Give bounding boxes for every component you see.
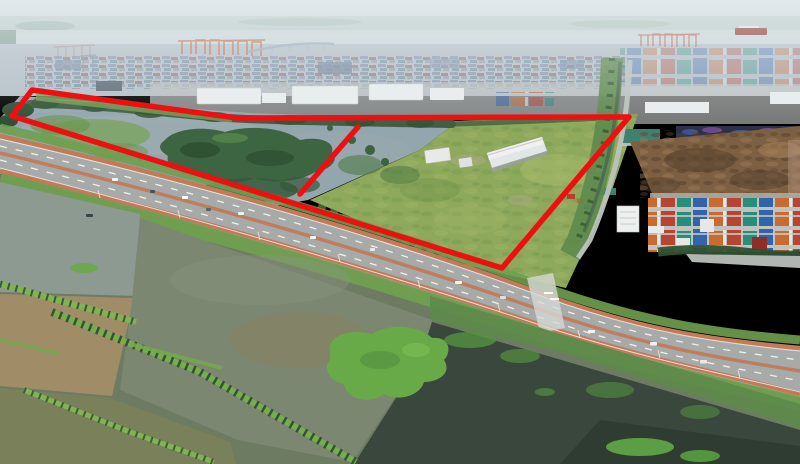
- container: [567, 194, 575, 199]
- hut-in-site: [459, 157, 473, 168]
- boat: [86, 214, 93, 217]
- timber-yard: [630, 126, 800, 198]
- aerial-photo: [0, 0, 800, 464]
- dirt-patch: [508, 195, 532, 205]
- haze-overlay: [0, 0, 800, 125]
- road-marking: [550, 298, 559, 300]
- road-marking: [544, 292, 553, 294]
- truck: [648, 226, 664, 233]
- yard-road: [686, 254, 800, 268]
- office-building: [617, 206, 639, 232]
- pond-island: [70, 263, 98, 273]
- container-yard: [648, 198, 800, 252]
